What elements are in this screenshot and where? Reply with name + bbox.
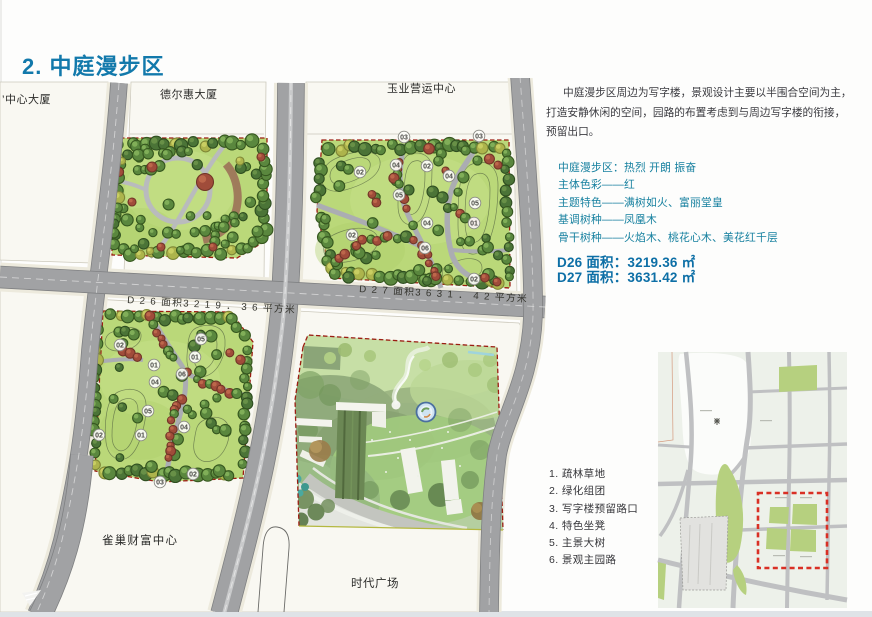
svg-text:04: 04 [180,425,188,432]
svg-text:03: 03 [156,480,164,487]
svg-text:02: 02 [423,164,431,171]
svg-text:03: 03 [475,134,483,141]
svg-text:06: 06 [178,372,186,379]
svg-text:05: 05 [144,409,152,416]
svg-text:’中心大厦: ’中心大厦 [2,92,51,106]
svg-text:02: 02 [470,277,478,284]
svg-text:06: 06 [421,246,429,253]
svg-text:玉业营运中心: 玉业营运中心 [387,81,456,95]
svg-text:德尔惠大厦: 德尔惠大厦 [160,87,218,101]
svg-text:03: 03 [400,135,408,142]
svg-text:04: 04 [445,174,453,181]
svg-text:01: 01 [470,221,478,228]
svg-text:02: 02 [356,170,364,177]
svg-text:02: 02 [189,472,197,479]
svg-text:雀巢财富中心: 雀巢财富中心 [102,533,178,547]
svg-text:01: 01 [191,355,199,362]
svg-text:02: 02 [348,233,356,240]
svg-text:04: 04 [392,163,400,170]
svg-text:02: 02 [116,343,124,350]
svg-text:05: 05 [197,337,205,344]
svg-text:01: 01 [137,433,145,440]
svg-text:05: 05 [395,193,403,200]
svg-text:04: 04 [151,380,159,387]
svg-text:01: 01 [150,363,158,370]
svg-text:时代广场: 时代广场 [351,576,399,590]
svg-text:05: 05 [471,201,479,208]
svg-text:02: 02 [95,433,103,440]
svg-text:04: 04 [423,221,431,228]
